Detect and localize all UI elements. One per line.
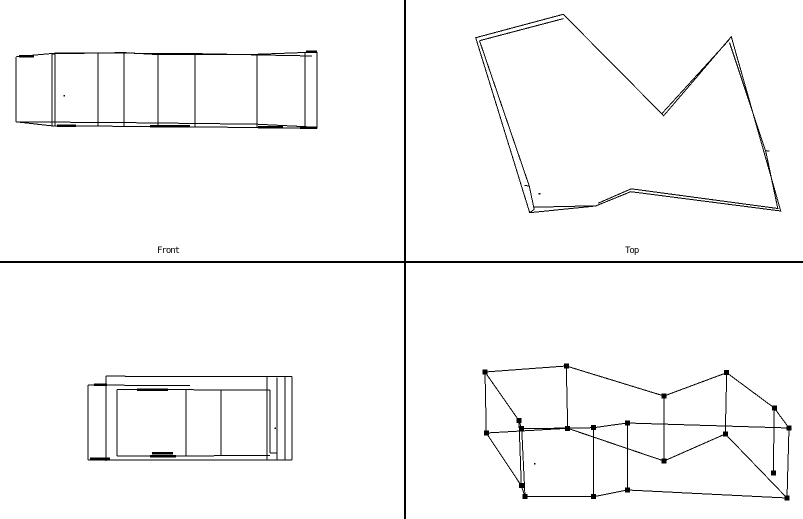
vertex-handle[interactable] xyxy=(519,426,524,431)
vertex-handle[interactable] xyxy=(591,425,596,430)
wireframe-line xyxy=(566,366,567,428)
vertex-handle[interactable] xyxy=(625,421,630,426)
vertex-handle[interactable] xyxy=(724,370,729,375)
front-viewport-label: Front xyxy=(157,246,179,256)
vertex-handle[interactable] xyxy=(519,483,524,488)
wireframe-outline xyxy=(598,43,778,209)
wireframe-outline xyxy=(486,428,787,498)
vertex-handle[interactable] xyxy=(625,488,630,493)
vertex-handle[interactable] xyxy=(523,494,528,499)
wireframe-outline xyxy=(480,19,564,41)
stray-dot xyxy=(274,427,276,429)
wireframe-line xyxy=(773,408,774,473)
wireframe-drawing-surface xyxy=(0,0,803,519)
vertex-handle[interactable] xyxy=(484,431,489,436)
top-viewport[interactable] xyxy=(476,14,781,212)
wireframe-outline xyxy=(480,41,535,210)
vertex-handle[interactable] xyxy=(517,418,522,423)
vertex-handle[interactable] xyxy=(591,494,596,499)
stray-dot xyxy=(64,95,66,97)
vertex-handle[interactable] xyxy=(565,426,570,431)
top-viewport-label: Top xyxy=(625,246,638,256)
four-view-modeler-window: Front Top xyxy=(0,0,803,519)
vertex-handle[interactable] xyxy=(771,471,776,476)
wireframe-outline xyxy=(662,41,729,114)
vertex-handle[interactable] xyxy=(483,370,488,375)
vertex-handle[interactable] xyxy=(662,459,667,464)
front-viewport[interactable] xyxy=(16,52,317,129)
side-viewport[interactable] xyxy=(88,376,292,461)
wireframe-line xyxy=(106,376,292,377)
vertex-handle[interactable] xyxy=(723,432,728,437)
wireframe-line xyxy=(485,372,486,433)
vertex-handle[interactable] xyxy=(564,364,569,369)
stray-dot xyxy=(539,193,541,195)
vertex-handle[interactable] xyxy=(772,406,777,411)
wireframe-outline xyxy=(476,14,781,212)
wireframe-line xyxy=(524,185,529,186)
vertex-handle[interactable] xyxy=(787,426,792,431)
wireframe-line xyxy=(725,373,726,434)
stray-dot xyxy=(534,463,536,465)
wireframe-outline xyxy=(485,366,789,429)
perspective-viewport[interactable] xyxy=(483,364,792,501)
wireframe-line xyxy=(117,456,270,457)
vertex-handle[interactable] xyxy=(662,394,667,399)
vertex-handle[interactable] xyxy=(785,496,790,501)
wireframe-line xyxy=(787,428,789,498)
